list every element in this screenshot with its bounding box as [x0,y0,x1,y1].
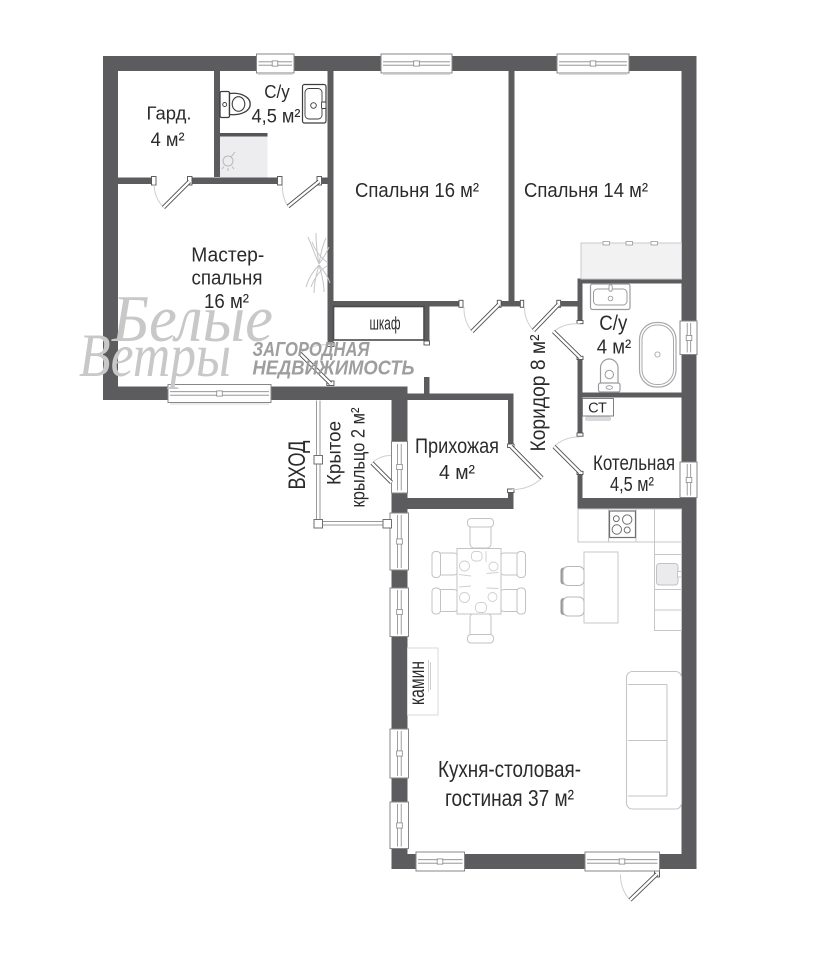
svg-text:шкаф: шкаф [370,314,401,334]
svg-text:СТ: СТ [588,401,607,417]
svg-text:крыльцо 2 м²: крыльцо 2 м² [349,408,370,508]
svg-text:Крытое: Крытое [325,421,346,485]
svg-text:4,5 м²: 4,5 м² [610,474,654,496]
svg-text:Спальня 14 м²: Спальня 14 м² [524,180,648,202]
svg-text:4 м²: 4 м² [151,130,185,151]
svg-text:4 м²: 4 м² [439,462,475,484]
svg-text:Кухня-столовая-: Кухня-столовая- [438,756,581,782]
svg-text:Мастер-: Мастер- [191,245,264,267]
svg-text:НЕДВИЖИМОСТЬ: НЕДВИЖИМОСТЬ [253,358,415,380]
svg-text:4,5 м²: 4,5 м² [252,107,301,128]
svg-text:Прихожая: Прихожая [415,435,499,458]
svg-text:ВХОД: ВХОД [284,440,311,489]
svg-text:гостиная 37 м²: гостиная 37 м² [445,785,574,811]
svg-text:Коридор 8 м²: Коридор 8 м² [527,334,550,451]
svg-text:камин: камин [406,661,429,705]
svg-text:4 м²: 4 м² [597,337,632,359]
svg-text:С/у: С/у [264,82,290,102]
svg-text:С/у: С/у [599,312,627,335]
svg-text:Котельная: Котельная [593,452,675,475]
svg-text:Спальня 16 м²: Спальня 16 м² [355,180,479,202]
svg-text:Гард.: Гард. [147,103,192,124]
svg-text:Ветры: Ветры [79,323,231,390]
